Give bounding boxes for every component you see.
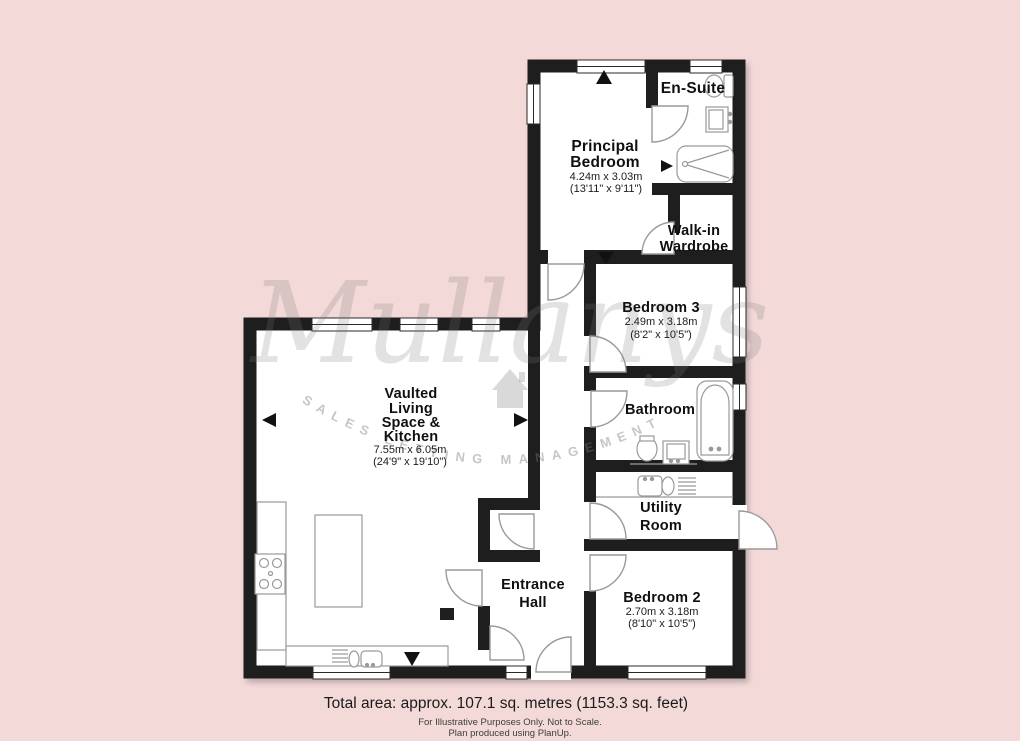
door-arc [739, 511, 777, 549]
room-label-bedroom-3: Bedroom 3 [622, 300, 700, 316]
room-dims-bedroom-3-metric: 2.49m x 3.18m [625, 316, 698, 328]
window [506, 666, 527, 679]
total-area-text: Total area: approx. 107.1 sq. metres (11… [0, 695, 1012, 713]
kitchen-island [315, 515, 362, 607]
room-dims-principal-bedroom-metric: 4.24m x 3.03m [570, 171, 643, 183]
toilet [637, 436, 657, 461]
room-label-walk-in-wardrobe-line2: Wardrobe [660, 239, 729, 255]
shower [677, 146, 733, 182]
room-label-utility-line1: Utility [640, 500, 682, 516]
room-label-bathroom: Bathroom [625, 402, 695, 418]
kitchen-basin [349, 651, 359, 667]
sink [706, 107, 732, 132]
window [690, 60, 722, 73]
room-label-entrance-hall-line1: Entrance [501, 577, 565, 593]
utility-sink [638, 476, 662, 496]
sink [663, 441, 689, 464]
window [527, 84, 540, 124]
room-dims-bedroom-2-imperial: (8'10" x 10'5") [628, 618, 696, 630]
room-dims-living-imperial: (24'9" x 19'10") [373, 456, 447, 468]
room-dims-living-metric: 7.55m x 6.05m [374, 444, 447, 456]
room-label-en-suite: En-Suite [661, 80, 725, 98]
credit-text: Plan produced using PlanUp. [0, 728, 1020, 739]
room-label-utility-line2: Room [640, 518, 682, 534]
disclaimer-text: For Illustrative Purposes Only. Not to S… [0, 717, 1020, 728]
room-dims-principal-bedroom-imperial: (13'11" x 9'11") [570, 183, 642, 195]
bath [697, 381, 733, 461]
room-label-walk-in-wardrobe-line1: Walk-in [668, 223, 720, 239]
floor-plan-page: Mullanys SALES LETTING MANAGEMENT En-Sui… [0, 0, 1020, 741]
room-label-entrance-hall-line2: Hall [519, 595, 546, 611]
window [628, 666, 706, 679]
room-label-bedroom-2: Bedroom 2 [623, 590, 701, 606]
utility-basin [662, 477, 674, 495]
room-label-principal-bedroom-line2: Bedroom [570, 154, 639, 172]
room-label-living-line4: Kitchen [384, 429, 439, 445]
kitchen-sink [361, 651, 382, 667]
room-dims-bedroom-2-metric: 2.70m x 3.18m [626, 606, 699, 618]
room-dims-bedroom-3-imperial: (8'2" x 10'5") [630, 329, 692, 341]
room-label-living-line1: Vaulted [385, 386, 438, 402]
window [313, 666, 390, 679]
window [577, 60, 645, 73]
hob [255, 554, 285, 594]
floor-plan-drawing: Mullanys SALES LETTING MANAGEMENT [0, 0, 1020, 741]
